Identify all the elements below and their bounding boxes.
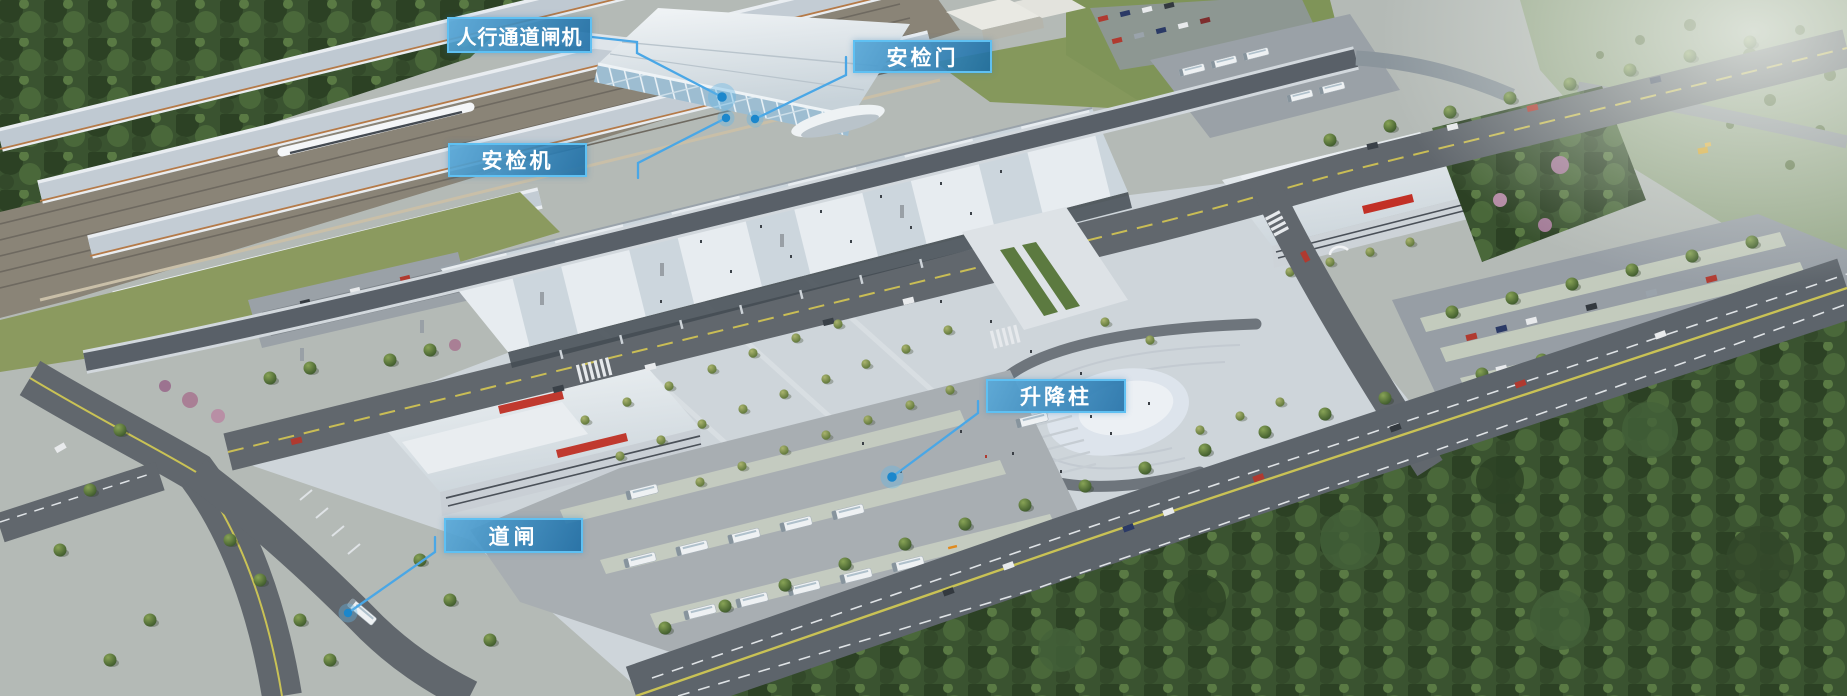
marker-road-barrier[interactable] <box>339 604 358 623</box>
station-aerial-annotated-render: 人行通道闸机 安检门 安检机 升降柱 道闸 <box>0 0 1847 696</box>
marker-lifting-bollard[interactable] <box>881 466 904 489</box>
leader-security-scanner <box>638 118 726 178</box>
marker-security-scanner[interactable] <box>718 110 735 127</box>
callout-security-scanner[interactable]: 安检机 <box>448 143 587 177</box>
leader-road-barrier <box>348 537 435 613</box>
annotation-overlay <box>0 0 1847 696</box>
leader-security-door <box>755 57 846 119</box>
leader-lines <box>348 37 978 613</box>
leader-lifting-bollard <box>892 401 978 477</box>
callout-pedestrian-channel-gate[interactable]: 人行通道闸机 <box>447 17 592 53</box>
marker-dots <box>339 83 904 623</box>
leader-pedestrian-gate <box>592 37 722 97</box>
marker-security-door[interactable] <box>747 111 764 128</box>
callout-security-door[interactable]: 安检门 <box>853 40 992 73</box>
callout-road-barrier-gate[interactable]: 道闸 <box>444 518 583 553</box>
callout-lifting-bollard[interactable]: 升降柱 <box>986 379 1126 413</box>
marker-pedestrian-gate[interactable] <box>708 83 736 111</box>
